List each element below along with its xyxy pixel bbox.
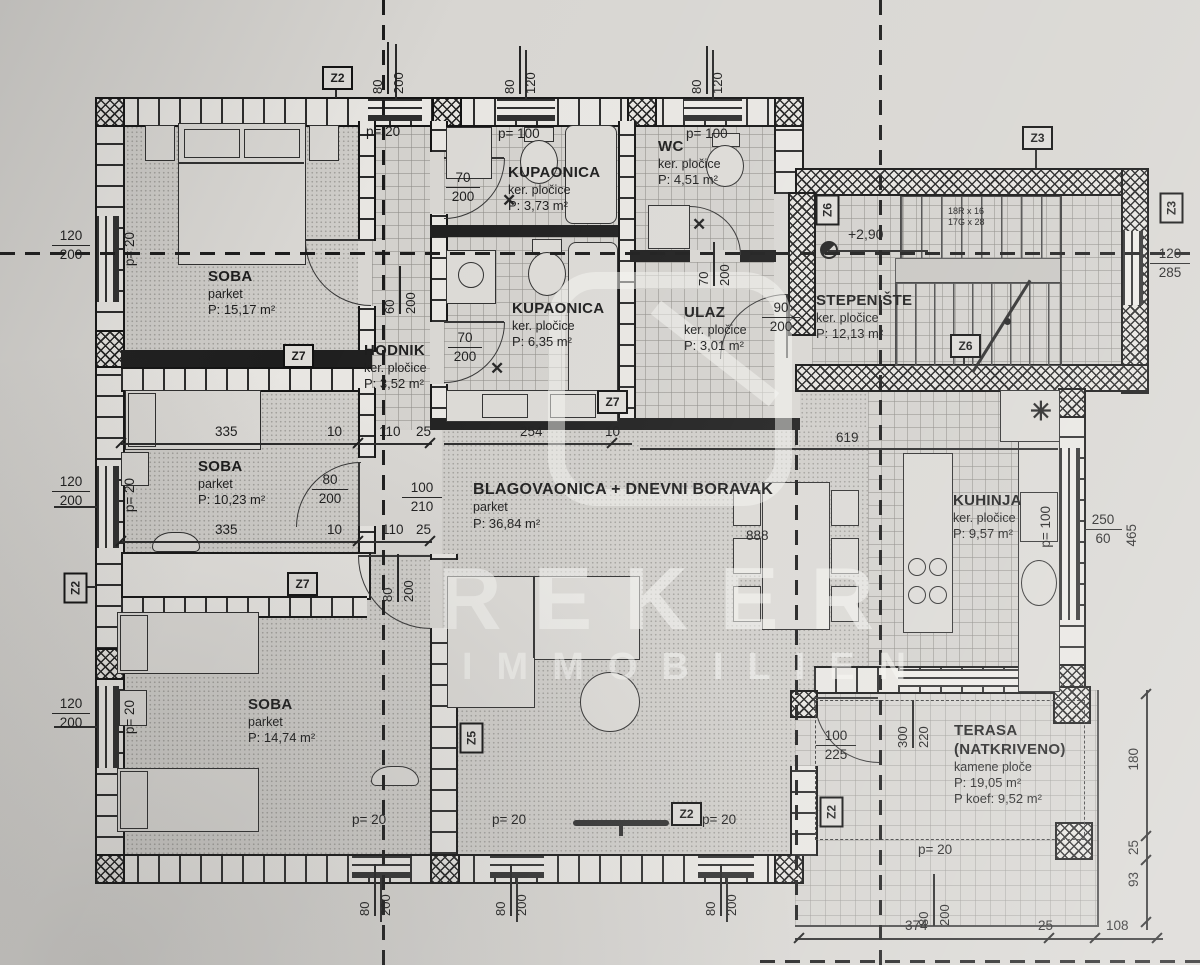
dim-619: 619 <box>836 430 859 445</box>
room-floor: parket <box>198 477 265 493</box>
bed-pillow <box>244 129 300 158</box>
room-area: P: 3,01 m² <box>684 338 747 354</box>
room-area: P: 19,05 m² <box>954 775 1066 791</box>
dim-height: 200 <box>722 864 741 916</box>
dim-335: 335 <box>215 424 238 439</box>
room-name: BLAGOVAONICA + DNEVNI BORAVAK <box>473 480 773 500</box>
stair-break-dot <box>1004 318 1011 325</box>
door-dim-wc: 70200 <box>694 242 734 286</box>
dim-height: 200 <box>770 319 793 334</box>
parapet-label: p= 20 <box>122 232 137 266</box>
sofa-line <box>533 576 535 658</box>
dim-width: 100 <box>411 480 434 495</box>
marker-z7: Z7 <box>597 390 628 414</box>
window-dim-right: 120285 <box>1150 246 1190 281</box>
room-label-soba1: SOBA parket P: 15,17 m² <box>208 268 275 319</box>
parapet-label: p= 20 <box>352 812 386 827</box>
room-label-stepeniste: STEPENIŠTE ker. pločice P: 12,13 m² <box>816 292 912 343</box>
wall-pier <box>95 97 125 127</box>
marker-z2: Z2 <box>64 573 88 604</box>
dim-width: 120 <box>60 696 83 711</box>
room-label-hodnik: HODNIK ker. pločice P: 3,52 m² <box>364 342 427 393</box>
room-area: P: 3,52 m² <box>364 376 427 392</box>
room-name: STEPENIŠTE <box>816 292 912 311</box>
wall-soba1-south <box>121 350 372 367</box>
corner-sink <box>648 205 690 249</box>
room-name: HODNIK <box>364 342 427 361</box>
window-dim: 80200 <box>491 864 531 916</box>
window-dim: 80120 <box>500 46 540 94</box>
level-marker-icon <box>820 241 838 259</box>
dim-height: 200 <box>60 247 83 262</box>
wall-soba2-soba3 <box>121 552 371 600</box>
room-label-blagovaonica: BLAGOVAONICA + DNEVNI BORAVAK parket P: … <box>473 480 773 532</box>
room-area: P: 6,35 m² <box>512 334 604 350</box>
room-name: SOBA <box>208 268 275 287</box>
wall-bath-divider <box>430 225 630 237</box>
dim-line <box>640 448 1058 450</box>
burner <box>908 586 926 604</box>
dim-374: 374 <box>905 918 928 933</box>
dim-width: 80 <box>491 864 510 916</box>
door-dim-hodnik: 60200 <box>380 266 420 314</box>
room-label-soba2: SOBA parket P: 10,23 m² <box>198 458 265 509</box>
room-area: P: 3,73 m² <box>508 198 600 214</box>
bed-pillow <box>184 129 240 158</box>
dim-180: 180 <box>1126 748 1141 771</box>
dim-10: 10 <box>327 522 342 537</box>
dim-width: 80 <box>368 42 387 94</box>
room-name: ULAZ <box>684 304 747 323</box>
tv-stand <box>619 826 623 836</box>
dim-line-terasa-right <box>1146 690 1148 930</box>
parapet-label: p= 20 <box>366 124 400 139</box>
dim-335: 335 <box>215 522 238 537</box>
room-floor: ker. pločice <box>658 157 721 173</box>
dim-height: 200 <box>452 189 475 204</box>
window <box>1123 231 1143 305</box>
dim-width: 80 <box>355 864 374 916</box>
washing-machine-drum <box>458 262 484 288</box>
window-dim: 80200 <box>368 42 408 94</box>
coffee-table <box>580 672 640 732</box>
burner <box>908 558 926 576</box>
terasa-edge <box>1097 690 1099 926</box>
room-area: P: 9,57 m² <box>953 526 1022 542</box>
dim-width: 80 <box>687 46 706 94</box>
room-name: TERASA <box>954 722 1066 741</box>
room-floor: ker. pločice <box>953 511 1022 527</box>
parapet-label: p= 20 <box>122 700 137 734</box>
drain-symbol: ✕ <box>490 360 504 377</box>
dim-height: 120 <box>521 46 540 94</box>
marker-z6: Z6 <box>816 195 840 226</box>
dim-height: 200 <box>715 242 734 286</box>
dim-height: 200 <box>935 874 954 926</box>
window-dim-left: 120200 <box>52 228 90 263</box>
nightstand <box>309 125 339 161</box>
wall-soba2-east <box>358 526 376 554</box>
basin <box>482 394 528 418</box>
parapet-label: p= 20 <box>918 842 952 857</box>
drain-symbol: ✕ <box>692 216 706 233</box>
room-name: KUPAONICA <box>512 300 604 319</box>
dim-line <box>121 541 432 543</box>
wall-soba1-south <box>121 367 372 392</box>
room-floor: ker. pločice <box>816 311 912 327</box>
bed-pillow <box>120 615 148 671</box>
marker-z3: Z3 <box>1160 193 1184 224</box>
door-leaf <box>305 239 370 241</box>
parapet-label: p= 100 <box>1038 506 1053 548</box>
nightstand <box>145 125 175 161</box>
axis-horizontal-1 <box>0 252 1200 255</box>
dim-width: 120 <box>60 228 83 243</box>
wall-pier <box>774 97 804 127</box>
room-area: P: 4,51 m² <box>658 172 721 188</box>
room-label-wc: WC ker. pločice P: 4,51 m² <box>658 138 721 189</box>
dim-height: 200 <box>399 554 418 602</box>
dim-height: 200 <box>376 864 395 916</box>
door-dim-kupaonica1: 70200 <box>446 170 480 205</box>
dim-width: 80 <box>378 554 397 602</box>
door-dim-ulaz: 90200 <box>762 300 800 335</box>
wall-pier <box>774 854 804 884</box>
window-dim-kitchen-height: 465 <box>1124 524 1139 547</box>
dim-height: 200 <box>512 864 531 916</box>
dim-width: 80 <box>322 472 337 487</box>
window-dim: 80120 <box>687 46 727 94</box>
dim-height: 220 <box>914 700 933 748</box>
kitchen-sink <box>1021 560 1057 606</box>
window-dim-kitchen: 25060 <box>1084 512 1122 547</box>
room-floor: ker. pločice <box>364 361 427 377</box>
window <box>1060 448 1080 620</box>
stair-landing-strip <box>895 258 1062 284</box>
dim-height: 200 <box>319 491 342 506</box>
parapet-label: p= 20 <box>122 478 137 512</box>
room-label-kuhinja: KUHINJA ker. pločice P: 9,57 m² <box>953 492 1022 543</box>
door-dim-soba2: 80200 <box>312 472 348 507</box>
wall-soba3-east <box>430 554 458 560</box>
floor-plan-sheet: 18R x 16 17G x 28 +2,90 16 15 14 13 12 1… <box>0 0 1200 965</box>
stair-level: +2,90 <box>848 226 883 242</box>
marker-stem <box>86 586 96 588</box>
room-floor: parket <box>248 715 315 731</box>
window <box>684 99 742 121</box>
dim-110: 110 <box>382 522 404 537</box>
parapet-label: p= 20 <box>492 812 526 827</box>
dim-height: 285 <box>1159 265 1182 280</box>
dim-10: 10 <box>327 424 342 439</box>
door-dim-terasa: 100225 <box>816 728 856 763</box>
dim-height: 200 <box>60 493 83 508</box>
kitchen-island <box>903 453 953 633</box>
dim-height: 60 <box>1095 531 1110 546</box>
room-label-kupaonica1: KUPAONICA ker. pločice P: 3,73 m² <box>508 164 600 215</box>
dim-height: 210 <box>411 499 434 514</box>
sofa-chaise <box>447 576 535 708</box>
window-dim-left: 120200 <box>52 696 90 731</box>
dim-line <box>121 443 432 445</box>
marker-z3: Z3 <box>1022 126 1053 150</box>
dim-width: 70 <box>694 242 713 286</box>
parapet-label: p= 100 <box>686 126 728 141</box>
door-leaf <box>444 321 504 323</box>
dim-108: 108 <box>1106 918 1129 933</box>
room-label-kupaonica2: KUPAONICA ker. pločice P: 6,35 m² <box>512 300 604 351</box>
room-area: P: 12,13 m² <box>816 326 912 342</box>
dim-width: 300 <box>893 700 912 748</box>
chair <box>831 586 859 622</box>
room-floor: ker. pločice <box>684 323 747 339</box>
chair <box>831 490 859 526</box>
dim-height: 200 <box>401 266 420 314</box>
marker-z6: Z6 <box>950 334 981 358</box>
dim-888: 888 <box>746 528 769 543</box>
basin <box>550 394 596 418</box>
marker-z2: Z2 <box>671 802 702 826</box>
opening-dim-hodnik: 100210 <box>402 480 442 515</box>
axis-horizontal-2 <box>760 960 1200 963</box>
dim-height: 120 <box>708 46 727 94</box>
dim-width: 120 <box>1159 246 1182 261</box>
window-dim-left: 120200 <box>52 474 90 509</box>
dim-height: 200 <box>60 715 83 730</box>
floor-living-upper <box>800 388 868 430</box>
bed-blanket-line <box>178 162 304 164</box>
window <box>97 686 119 768</box>
wall-stair-top <box>795 168 1149 196</box>
window-dim: 80200 <box>355 864 395 916</box>
dim-height: 200 <box>454 349 477 364</box>
window <box>368 99 422 121</box>
room-name: KUPAONICA <box>508 164 600 183</box>
dim-25: 25 <box>416 522 431 537</box>
room-area: P: 10,23 m² <box>198 492 265 508</box>
parapet-label: p= 100 <box>498 126 540 141</box>
marker-z7: Z7 <box>287 572 318 596</box>
room-name-2: (NATKRIVENO) <box>954 741 1066 760</box>
window <box>497 99 555 121</box>
axis-vertical-2 <box>879 0 882 965</box>
wall-soba2-east <box>358 388 376 458</box>
window <box>97 466 119 548</box>
marker-z7: Z7 <box>283 344 314 368</box>
lamp-symbol <box>371 766 419 786</box>
window <box>97 216 119 302</box>
dim-width: 90 <box>773 300 788 315</box>
axis-vertical-3 <box>795 430 798 930</box>
marker-z5: Z5 <box>460 723 484 754</box>
room-floor: ker. pločice <box>512 319 604 335</box>
dim-width: 80 <box>500 46 519 94</box>
stair-spec-goings: 17G x 28 <box>948 217 985 227</box>
chair <box>733 538 761 574</box>
room-label-ulaz: ULAZ ker. pločice P: 3,01 m² <box>684 304 747 355</box>
dim-10: 10 <box>605 424 620 439</box>
dim-line <box>444 443 632 445</box>
door-dim-soba3: 80200 <box>378 554 418 602</box>
wall-bath-east <box>618 121 636 430</box>
dim-width: 70 <box>457 330 472 345</box>
room-floor: kamene ploče <box>954 760 1066 776</box>
dim-width: 80 <box>701 864 720 916</box>
dim-93: 93 <box>1126 872 1141 887</box>
dim-width: 100 <box>825 728 848 743</box>
room-label-terasa: TERASA (NATKRIVENO) kamene ploče P: 19,0… <box>954 722 1066 808</box>
room-floor: ker. pločice <box>508 183 600 199</box>
room-area: P: 36,84 m² <box>473 516 773 532</box>
room-floor: parket <box>208 287 275 303</box>
wall-living-north <box>630 418 800 430</box>
room-area: P: 15,17 m² <box>208 302 275 318</box>
terasa-opening-dim: 300220 <box>893 700 933 748</box>
marker-z2: Z2 <box>322 66 353 90</box>
stair-landing <box>1060 196 1119 364</box>
room-label-soba3: SOBA parket P: 14,74 m² <box>248 696 315 747</box>
dim-line-terasa-bottom <box>795 938 1163 940</box>
dim-254: 254 <box>520 424 543 439</box>
wall-pier <box>430 854 460 884</box>
dim-width: 70 <box>455 170 470 185</box>
room-area: P: 14,74 m² <box>248 730 315 746</box>
dim-height: 200 <box>389 42 408 94</box>
room-name: SOBA <box>198 458 265 477</box>
burner <box>929 586 947 604</box>
room-name: KUHINJA <box>953 492 1022 511</box>
boiler-symbol: ✳ <box>1030 398 1052 424</box>
door-leaf <box>358 462 360 526</box>
door-dim-kupaonica2: 70200 <box>448 330 482 365</box>
room-floor: parket <box>473 500 773 516</box>
chair <box>733 586 761 622</box>
chair <box>831 538 859 574</box>
window-dim: 80200 <box>701 864 741 916</box>
toilet <box>528 252 566 296</box>
dim-25: 25 <box>1126 840 1141 855</box>
parapet-label: p= 20 <box>702 812 736 827</box>
room-area-coef: P koef: 9,52 m² <box>954 791 1066 807</box>
dim-25: 25 <box>1038 918 1053 933</box>
dim-width: 60 <box>380 266 399 314</box>
wall-soba1-east <box>358 121 376 241</box>
dim-width: 120 <box>60 474 83 489</box>
stair-spec-risers: 18R x 16 <box>948 206 984 216</box>
room-name: SOBA <box>248 696 315 715</box>
dim-110: 110 <box>379 424 401 439</box>
bed-pillow <box>128 393 156 447</box>
burner <box>929 558 947 576</box>
door-leaf <box>814 697 878 699</box>
dim-width: 250 <box>1092 512 1115 527</box>
bed-pillow <box>120 771 148 829</box>
dim-height: 225 <box>825 747 848 762</box>
dim-25: 25 <box>416 424 431 439</box>
marker-stem <box>1035 148 1037 168</box>
wall-pier <box>1058 388 1086 418</box>
marker-z2: Z2 <box>820 797 844 828</box>
wall-pier <box>95 854 125 884</box>
